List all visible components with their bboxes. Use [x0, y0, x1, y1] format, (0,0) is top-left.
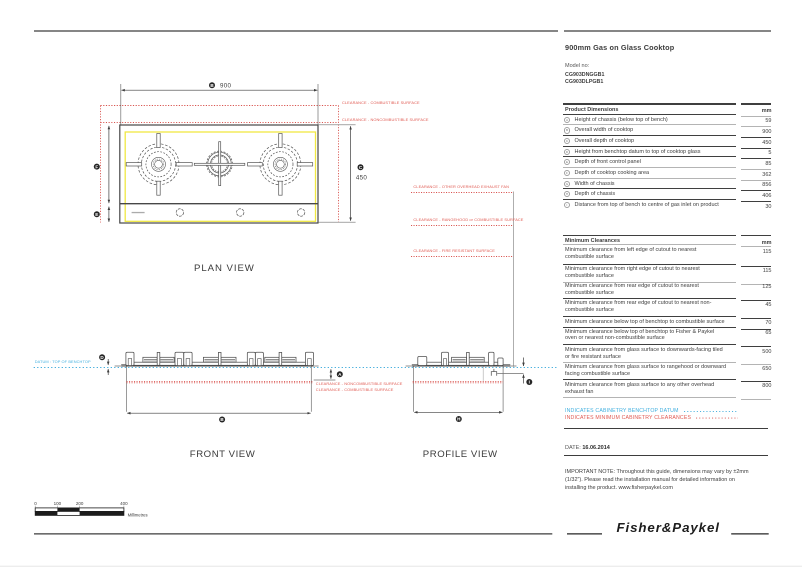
svg-text:E: E [95, 212, 98, 217]
svg-text:F: F [95, 164, 98, 169]
svg-text:400: 400 [120, 501, 128, 506]
svg-text:0: 0 [34, 501, 37, 506]
svg-text:100: 100 [54, 501, 62, 506]
svg-text:450: 450 [356, 174, 367, 181]
svg-text:900: 900 [220, 83, 231, 90]
svg-text:I: I [529, 380, 530, 385]
svg-text:200: 200 [76, 501, 84, 506]
svg-text:Millimetres: Millimetres [128, 512, 148, 517]
